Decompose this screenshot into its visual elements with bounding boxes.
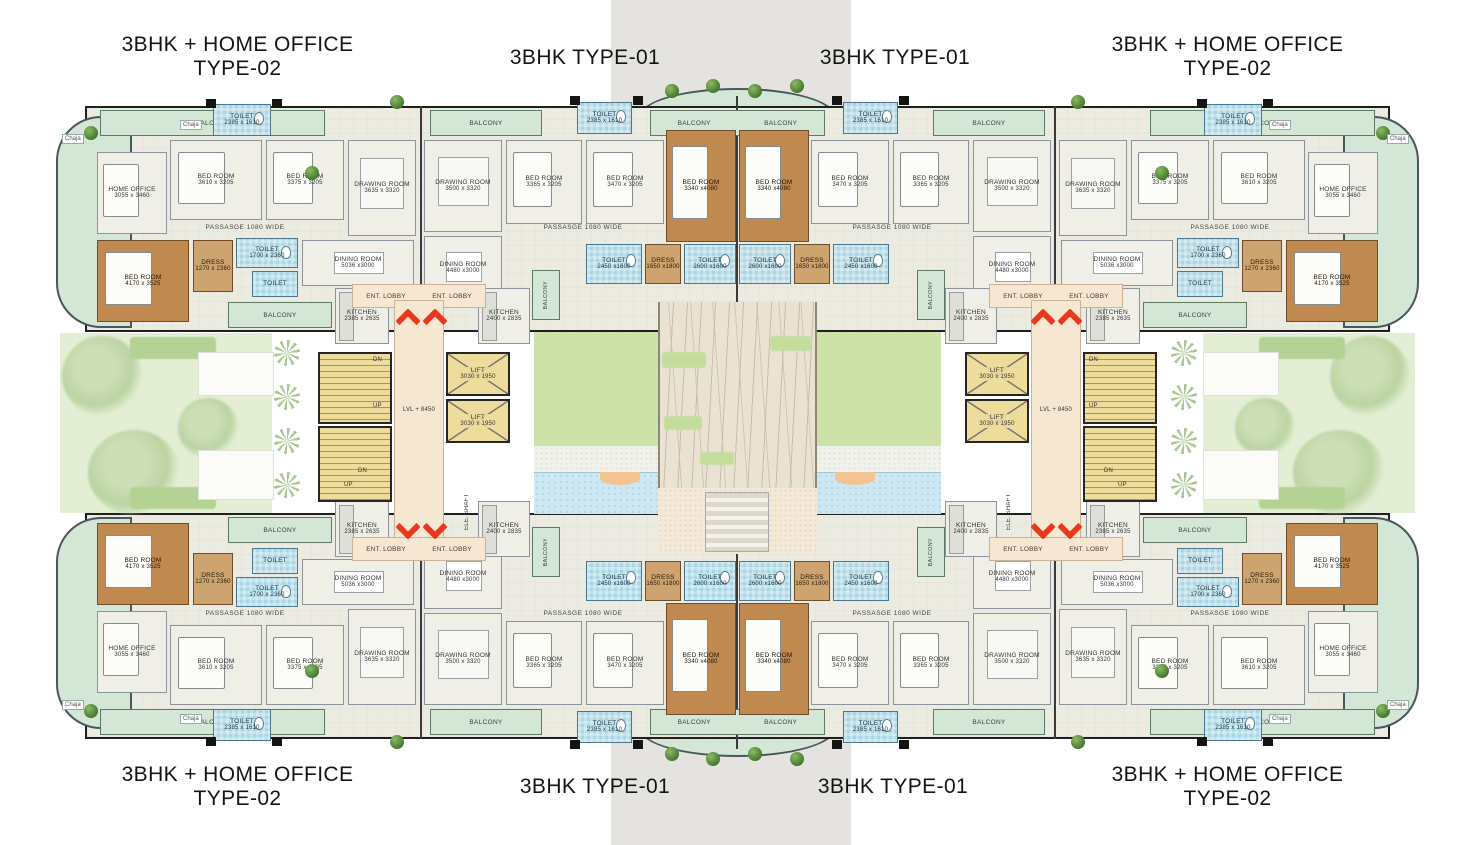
dress-room: DRESS1650 x1800 [794, 244, 830, 284]
dining-room: DINING ROOM5036 x3000 [1061, 559, 1173, 605]
wall-stub [206, 99, 216, 108]
dress-room: DRESS1270 x 2360 [1242, 553, 1282, 605]
chajja-label: Chaja [1269, 714, 1291, 724]
toilet: TOILET2450 x1600 [586, 244, 642, 284]
master-bedroom: BED ROOM3340 x4080 [739, 130, 809, 242]
palm-tree-icon [274, 340, 300, 366]
drawing-room: DRAWING ROOM3500 x 3320 [424, 140, 502, 232]
dn-label: DN [1104, 468, 1113, 474]
wall-stub [633, 96, 643, 105]
entrance-lobby: ENT. LOBBYENT. LOBBY [989, 537, 1123, 561]
home-office: HOME OFFICE3055 x 3460 [1308, 611, 1378, 693]
toilet: TOILET2600 x1600 [739, 561, 791, 601]
balcony: BALCONY [532, 527, 560, 577]
bush-icon [305, 166, 319, 180]
garden-pavement [1203, 450, 1279, 500]
bush-icon [665, 747, 679, 761]
dining-room: DINING ROOM5036 x3000 [1061, 240, 1173, 286]
balcony: BALCONY [228, 302, 332, 328]
bedroom: BED ROOM3375 x 3205 [1131, 625, 1209, 705]
bush-icon [790, 752, 804, 766]
lawn-patch [662, 352, 706, 368]
toilet: TOILET [252, 548, 298, 574]
master-bedroom: BED ROOM3340 x4080 [739, 603, 809, 715]
toilet: TOILET2600 x1600 [684, 561, 736, 601]
garden-pavement [198, 352, 274, 396]
palm-tree-icon [1171, 428, 1197, 454]
unit-type-label-bottom-center-right: 3BHK TYPE-01 [768, 775, 1018, 799]
balcony: BALCONY [430, 110, 542, 136]
wall-stub [1263, 99, 1273, 108]
courtyard-lawn [817, 332, 941, 446]
dress-room: DRESS1650 x1800 [794, 561, 830, 601]
wall-stub [633, 740, 643, 749]
bush-icon [305, 664, 319, 678]
staircase [318, 426, 392, 502]
unit-type-label-top-center-right: 3BHK TYPE-01 [770, 46, 1020, 70]
chajja-label: Chaja [180, 120, 202, 130]
unit-type-label-bottom-left: 3BHK + HOME OFFICETYPE-02 [85, 763, 390, 812]
dress-room: DRESS1270 x 2360 [193, 553, 233, 605]
dining-room: DINING ROOM5036 x3000 [302, 559, 414, 605]
home-office: HOME OFFICE3055 x 3460 [97, 611, 167, 693]
pool-step [835, 472, 875, 485]
balcony: BALCONY [1150, 110, 1375, 136]
dn-label: DN [358, 468, 367, 474]
wall-stub [832, 740, 842, 749]
entry-toilet: TOILET2385 x 1610 [577, 711, 632, 743]
unit-type-label-bottom-center-left: 3BHK TYPE-01 [470, 775, 720, 799]
lift: LIFT3030 x 1950 [965, 399, 1029, 443]
toilet: TOILET [1177, 271, 1223, 297]
dining-room: DINING ROOM5036 x3000 [302, 240, 414, 286]
wall-stub [206, 737, 216, 746]
dress-room: DRESS1650 x1800 [645, 561, 681, 601]
up-label: UP [373, 403, 382, 409]
toilet: TOILET1700 x 2360 [1177, 238, 1239, 268]
lawn-patch [770, 336, 812, 351]
tree-icon [178, 398, 238, 458]
pool-step [600, 472, 640, 485]
bush-icon [84, 704, 98, 718]
toilet: TOILET2600 x1600 [684, 244, 736, 284]
dress-room: DRESS1270 x 2360 [193, 240, 233, 292]
ele-shaft-label: ELE. SHAFT [1006, 486, 1012, 530]
bush-icon [1071, 735, 1085, 749]
dress-room: DRESS1650 x1800 [645, 244, 681, 284]
balcony: BALCONY [430, 709, 542, 735]
toilet: TOILET2600 x1600 [739, 244, 791, 284]
level-label: LVL + 8450 [386, 407, 452, 413]
bush-icon [706, 79, 720, 93]
bush-icon [84, 126, 98, 140]
up-label: UP [1118, 482, 1127, 488]
bush-icon [390, 735, 404, 749]
balcony: BALCONY [1143, 517, 1247, 543]
bedroom: BED ROOM3365 x 3205 [506, 621, 582, 705]
toilet: TOILET [252, 271, 298, 297]
passage-label: PASSASGE 1080 WIDE [807, 224, 977, 231]
dn-label: DN [373, 357, 382, 363]
wall-stub [832, 96, 842, 105]
unit-type-label-top-right: 3BHK + HOME OFFICETYPE-02 [1075, 33, 1380, 82]
bedroom: BED ROOM3375 x 3205 [266, 140, 344, 220]
bush-icon [748, 747, 762, 761]
bush-icon [1155, 166, 1169, 180]
balcony: BALCONY [933, 110, 1045, 136]
chajja-label: Chaja [1387, 700, 1409, 710]
palm-tree-icon [1171, 340, 1197, 366]
balcony: BALCONY [933, 709, 1045, 735]
lift: LIFT3030 x 1950 [446, 352, 510, 396]
wall-stub [570, 740, 580, 749]
drawing-room: DRAWING ROOM3635 x 3320 [1059, 140, 1127, 236]
drawing-room: DRAWING ROOM3500 x 3320 [424, 613, 502, 705]
unit-type-label-top-left: 3BHK + HOME OFFICETYPE-02 [85, 33, 390, 82]
lawn-patch [700, 452, 734, 465]
chajja-label: Chaja [1387, 134, 1409, 144]
balcony: BALCONY [917, 527, 945, 577]
dn-label: DN [1089, 357, 1098, 363]
wall-stub [1263, 737, 1273, 746]
master-bedroom: BED ROOM4170 x 3525 [97, 523, 189, 605]
palm-tree-icon [1171, 384, 1197, 410]
bush-icon [706, 752, 720, 766]
entry-toilet: TOILET2385 x 1610 [843, 102, 898, 134]
passage-label: PASSASGE 1080 WIDE [150, 224, 340, 231]
bedroom: BED ROOM3470 x 3205 [586, 140, 664, 224]
lift: LIFT3030 x 1950 [446, 399, 510, 443]
wall-stub [1197, 99, 1207, 108]
passage-label: PASSASGE 1080 WIDE [1135, 610, 1325, 617]
master-bedroom: BED ROOM3340 x4080 [666, 603, 736, 715]
entry-toilet: TOILET2385 x 1610 [843, 711, 898, 743]
entry-toilet: TOILET2385 x 1610 [213, 104, 271, 136]
chajja-label: Chaja [62, 700, 84, 710]
wall-stub [272, 99, 282, 108]
palm-tree-icon [1171, 472, 1197, 498]
garden-pavement [198, 450, 274, 500]
level-label: LVL + 8450 [1023, 407, 1089, 413]
entry-toilet: TOILET2385 x 1610 [213, 709, 271, 741]
balcony: BALCONY [228, 517, 332, 543]
drawing-room: DRAWING ROOM3500 x 3320 [973, 613, 1051, 705]
bedroom: BED ROOM3470 x 3205 [586, 621, 664, 705]
master-bedroom: BED ROOM4170 x 3525 [1286, 240, 1378, 322]
palm-tree-icon [274, 428, 300, 454]
courtyard-plaza [534, 446, 658, 472]
wall-stub [570, 96, 580, 105]
bush-icon [665, 84, 679, 98]
dress-room: DRESS1270 x 2360 [1242, 240, 1282, 292]
toilet: TOILET1700 x 2360 [236, 577, 298, 607]
drawing-room: DRAWING ROOM3635 x 3320 [348, 609, 416, 705]
bush-icon [1155, 664, 1169, 678]
bush-icon [790, 79, 804, 93]
lobby-corridor [1031, 300, 1081, 546]
drawing-room: DRAWING ROOM3635 x 3320 [348, 140, 416, 236]
toilet: TOILET1700 x 2360 [1177, 577, 1239, 607]
passage-label: PASSASGE 1080 WIDE [807, 610, 977, 617]
master-bedroom: BED ROOM4170 x 3525 [1286, 523, 1378, 605]
passage-label: PASSASGE 1080 WIDE [150, 610, 340, 617]
wall-stub [899, 96, 909, 105]
bedroom: BED ROOM3610 x 3205 [170, 625, 262, 705]
home-office: HOME OFFICE3055 x 3460 [1308, 152, 1378, 234]
toilet: TOILET2450 x1600 [833, 561, 889, 601]
wall-stub [1197, 737, 1207, 746]
bedroom: BED ROOM3610 x 3205 [1213, 625, 1305, 705]
passage-label: PASSASGE 1080 WIDE [498, 224, 668, 231]
balcony: BALCONY [1150, 709, 1375, 735]
up-label: UP [344, 482, 353, 488]
entry-toilet: TOILET2385 x 1610 [1204, 709, 1262, 741]
bedroom: BED ROOM3375 x 3205 [266, 625, 344, 705]
passage-label: PASSASGE 1080 WIDE [498, 610, 668, 617]
walkway [705, 492, 769, 552]
balcony: BALCONY [1143, 302, 1247, 328]
lift: LIFT3030 x 1950 [965, 352, 1029, 396]
bedroom: BED ROOM3610 x 3205 [1213, 140, 1305, 220]
lobby-corridor [394, 300, 444, 546]
bedroom: BED ROOM3375 x 3205 [1131, 140, 1209, 220]
ele-shaft-label: ELE. SHAFT [464, 486, 470, 530]
entry-toilet: TOILET2385 x 1610 [1204, 104, 1262, 136]
toilet: TOILET [1177, 548, 1223, 574]
courtyard-plaza [817, 446, 941, 472]
bedroom: BED ROOM3365 x 3205 [893, 621, 969, 705]
tree-icon [1235, 398, 1295, 458]
master-bedroom: BED ROOM4170 x 3525 [97, 240, 189, 322]
courtyard-deck [658, 302, 817, 488]
bedroom: BED ROOM3365 x 3205 [893, 140, 969, 224]
garden-pavement [1203, 352, 1279, 396]
chajja-label: Chaja [180, 714, 202, 724]
chajja-label: Chaja [62, 134, 84, 144]
balcony: BALCONY [532, 270, 560, 320]
unit-type-label-top-center-left: 3BHK TYPE-01 [460, 46, 710, 70]
chajja-label: Chaja [1269, 120, 1291, 130]
master-bedroom: BED ROOM3340 x4080 [666, 130, 736, 242]
bedroom: BED ROOM3470 x 3205 [811, 140, 889, 224]
staircase [1083, 426, 1157, 502]
toilet: TOILET2450 x1600 [586, 561, 642, 601]
palm-tree-icon [274, 384, 300, 410]
passage-label: PASSASGE 1080 WIDE [1135, 224, 1325, 231]
bush-icon [1071, 95, 1085, 109]
floor-plan-canvas: 3BHK + HOME OFFICETYPE-02 3BHK TYPE-01 3… [0, 0, 1475, 845]
bush-icon [748, 84, 762, 98]
toilet: TOILET1700 x 2360 [236, 238, 298, 268]
bush-icon [390, 95, 404, 109]
wall-stub [272, 737, 282, 746]
drawing-room: DRAWING ROOM3635 x 3320 [1059, 609, 1127, 705]
unit-type-label-bottom-right: 3BHK + HOME OFFICETYPE-02 [1075, 763, 1380, 812]
lawn-patch [664, 416, 702, 430]
entry-toilet: TOILET2385 x 1610 [577, 102, 632, 134]
courtyard-lawn [534, 332, 658, 446]
wall-stub [899, 740, 909, 749]
palm-tree-icon [274, 472, 300, 498]
balcony: BALCONY [917, 270, 945, 320]
drawing-room: DRAWING ROOM3500 x 3320 [973, 140, 1051, 232]
bedroom: BED ROOM3470 x 3205 [811, 621, 889, 705]
toilet: TOILET2450 x1600 [833, 244, 889, 284]
home-office: HOME OFFICE3055 x 3460 [97, 152, 167, 234]
entrance-lobby: ENT. LOBBYENT. LOBBY [352, 537, 486, 561]
bedroom: BED ROOM3365 x 3205 [506, 140, 582, 224]
up-label: UP [1089, 403, 1098, 409]
bedroom: BED ROOM3610 x 3205 [170, 140, 262, 220]
